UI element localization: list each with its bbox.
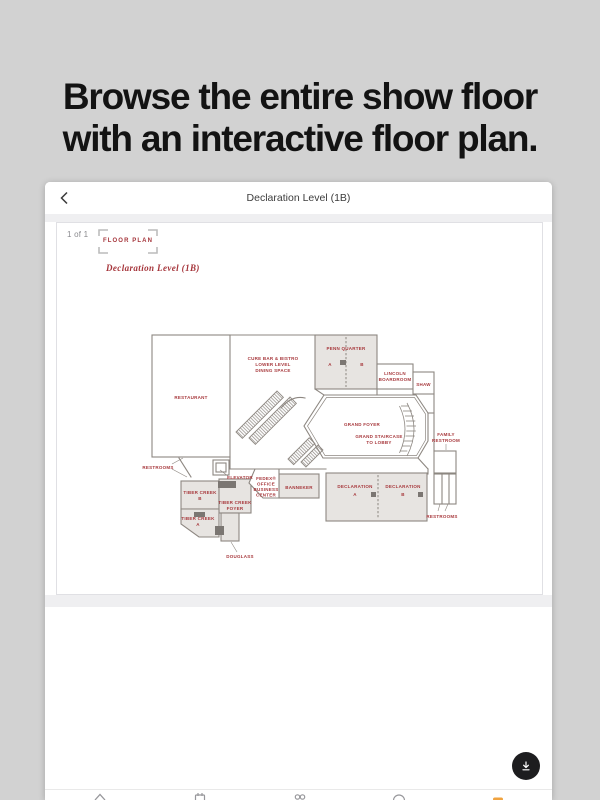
room-label-declaration-a-2: A bbox=[353, 492, 357, 497]
room-label-family-1: FAMILY bbox=[437, 432, 455, 437]
room-label-fedex-4: CENTER bbox=[256, 493, 277, 498]
room-label-tiber-b-2: B bbox=[198, 496, 202, 501]
download-button[interactable] bbox=[512, 752, 540, 780]
app-header: Declaration Level (1B) bbox=[45, 182, 552, 214]
calendar-icon bbox=[192, 792, 208, 800]
header-divider bbox=[45, 214, 552, 222]
download-icon bbox=[519, 759, 533, 773]
tabbar-divider bbox=[45, 789, 552, 790]
room-label-shaw: SHAW bbox=[416, 382, 431, 387]
tab-schedule[interactable] bbox=[192, 792, 208, 800]
room-label-restrooms-right: RESTROOMS bbox=[426, 514, 457, 519]
room-label-declaration-b-1: DECLARATION bbox=[385, 484, 420, 489]
room-family-restroom bbox=[434, 451, 456, 473]
home-icon bbox=[92, 792, 108, 800]
room-label-penn-quarter: PENN QUARTER bbox=[326, 346, 366, 351]
room-label-family-2: RESTROOM bbox=[432, 438, 460, 443]
people-icon bbox=[292, 792, 308, 800]
floor-plan[interactable]: RESTAURANT CURE BAR & BISTRO LOWER LEVEL… bbox=[141, 328, 471, 573]
room-label-cure-3: DINING SPACE bbox=[255, 368, 290, 373]
clock-icon bbox=[391, 792, 407, 800]
room-label-tiber-foyer-1: TIBER CREEK bbox=[218, 500, 252, 505]
page-title: Declaration Level (1B) bbox=[45, 182, 552, 214]
room-label-grand-foyer: GRAND FOYER bbox=[344, 422, 381, 427]
room-label-restrooms-left: RESTROOMS bbox=[142, 465, 173, 470]
floor-plan-panel: 1 of 1 FLOOR PLAN Declaration Level (1B) bbox=[56, 222, 543, 595]
room-label-declaration-a-1: DECLARATION bbox=[337, 484, 372, 489]
room-label-fedex-1: FEDEX® bbox=[256, 475, 276, 481]
panel-bottom-gap bbox=[45, 595, 552, 607]
room-label-penn-b: B bbox=[360, 362, 364, 367]
page-indicator: 1 of 1 bbox=[67, 230, 88, 239]
app-screen: Declaration Level (1B) 1 of 1 FLOOR PLAN… bbox=[45, 182, 552, 800]
room-label-lincoln-2: BOARDROOM bbox=[379, 377, 412, 382]
room-label-declaration-b-2: B bbox=[401, 492, 405, 497]
floor-plan-logo: FLOOR PLAN bbox=[98, 229, 158, 254]
room-restrooms-right bbox=[434, 474, 456, 504]
room-label-tiber-a-1: TIBER CREEK bbox=[181, 516, 215, 521]
headline-line-2: with an interactive floor plan. bbox=[0, 118, 600, 160]
room-label-staircase-1: GRAND STAIRCASE bbox=[355, 434, 402, 439]
room-label-cure-1: CURE BAR & BISTRO bbox=[248, 356, 299, 361]
room-label-restaurant: RESTAURANT bbox=[174, 395, 207, 400]
logo-text: FLOOR PLAN bbox=[98, 229, 158, 254]
room-label-fedex-2: OFFICE bbox=[257, 482, 275, 487]
room-label-staircase-2: TO LOBBY bbox=[366, 440, 391, 445]
room-label-banneker: BANNEKER bbox=[285, 485, 313, 490]
tab-people[interactable] bbox=[292, 792, 308, 800]
tab-home[interactable] bbox=[92, 792, 108, 800]
room-declaration bbox=[326, 473, 427, 521]
room-tiber-creek-b bbox=[181, 481, 219, 509]
marketing-screenshot: Browse the entire show floor with an int… bbox=[0, 0, 600, 800]
room-label-douglass: DOUGLASS bbox=[226, 554, 254, 559]
room-label-elevator: ELEVATOR bbox=[227, 475, 253, 480]
headline-line-1: Browse the entire show floor bbox=[0, 76, 600, 118]
room-label-tiber-a-2: A bbox=[196, 522, 200, 527]
map-icon bbox=[490, 792, 506, 800]
room-label-fedex-3: BUSINESS bbox=[253, 487, 278, 492]
room-label-tiber-b-1: TIBER CREEK bbox=[183, 490, 217, 495]
room-label-cure-2: LOWER LEVEL bbox=[255, 362, 290, 367]
headline: Browse the entire show floor with an int… bbox=[0, 76, 600, 160]
room-label-tiber-foyer-2: FOYER bbox=[227, 506, 244, 511]
plan-title: Declaration Level (1B) bbox=[106, 263, 200, 273]
tab-activity[interactable] bbox=[391, 792, 407, 800]
room-label-lincoln-1: LINCOLN bbox=[384, 371, 406, 376]
tab-map-active[interactable] bbox=[490, 792, 506, 800]
room-label-penn-a: A bbox=[328, 362, 332, 367]
